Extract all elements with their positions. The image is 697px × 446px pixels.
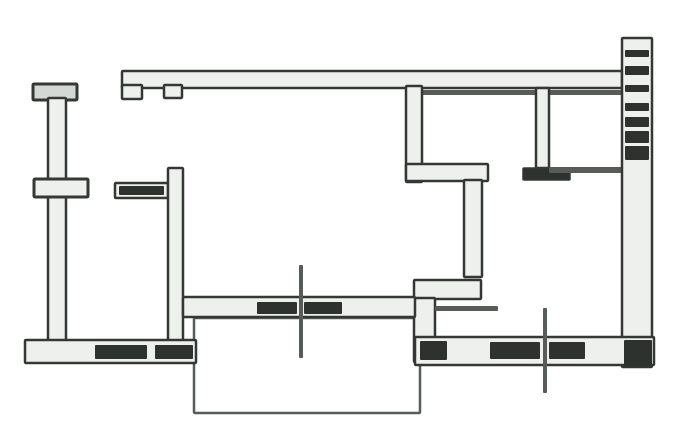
floorplan-svg [0, 0, 697, 446]
bottom-left-window-fill-b [155, 345, 193, 359]
top-wall-left-jamb [122, 85, 142, 99]
survey-cross-center [299, 265, 303, 358]
right-wall-hatch-5 [625, 117, 649, 127]
right-wall-hatch-7 [625, 146, 649, 160]
hall-partition-wall [168, 168, 183, 343]
corridor-wall [464, 180, 482, 277]
left-wall-pier [34, 179, 88, 197]
kitchen-lower-wall [406, 164, 488, 181]
bottom-right-window-fill-c [549, 342, 585, 359]
top-wall-second-jamb [164, 85, 182, 98]
floor-plan-page [0, 0, 697, 446]
right-wall-hatch-1 [625, 50, 649, 57]
bottom-right-window-fill-a [420, 341, 447, 360]
top-wall-inner-line [420, 90, 622, 95]
south-wall-window-fill-b [304, 302, 342, 314]
bottom-right-corner-fill [624, 340, 652, 366]
bottom-right-window-fill-b [490, 342, 540, 359]
entry-wall-fill [119, 186, 164, 195]
left-exterior-wall [48, 98, 66, 344]
corridor-step-wall [414, 280, 481, 299]
survey-cross-right [543, 308, 547, 393]
top-exterior-wall [122, 71, 622, 88]
right-wall-hatch-2 [625, 66, 649, 75]
threshold-line [435, 306, 498, 311]
right-wall-hatch-3 [625, 85, 649, 92]
bath-south-wall-line [549, 167, 628, 173]
balcony-outline [194, 318, 420, 413]
bottom-left-window-fill-a [95, 345, 147, 359]
right-wall-hatch-4 [625, 103, 649, 111]
south-wall-window-fill-a [257, 302, 297, 314]
bath-partition-wall [536, 88, 549, 168]
right-wall-hatch-6 [625, 131, 649, 143]
